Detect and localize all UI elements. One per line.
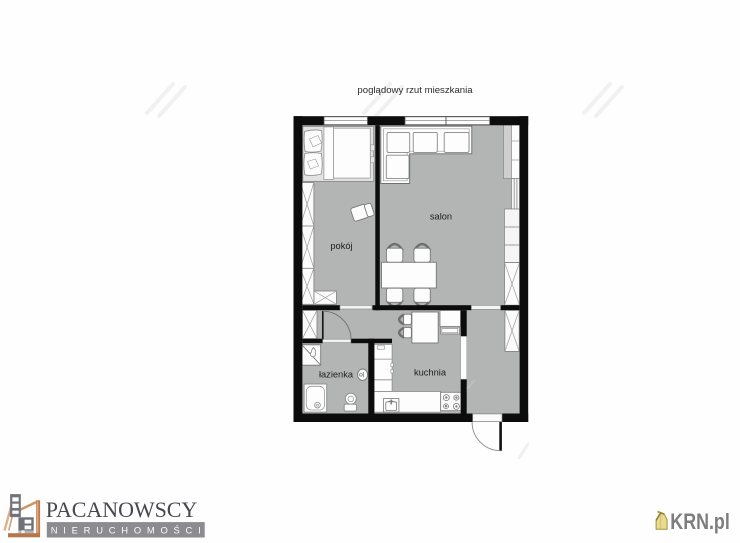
svg-text:PACANOWSCY: PACANOWSCY [46,497,198,522]
svg-text:łazienka: łazienka [319,370,354,380]
svg-text:KRN.pl: KRN.pl [670,509,730,534]
svg-text:kuchnia: kuchnia [414,368,447,378]
svg-text:NIERUCHOMOŚCI: NIERUCHOMOŚCI [51,525,201,536]
svg-text:pokój: pokój [330,241,352,251]
svg-text:salon: salon [430,212,452,222]
svg-text:poglądowy rzut mieszkania: poglądowy rzut mieszkania [357,85,473,96]
